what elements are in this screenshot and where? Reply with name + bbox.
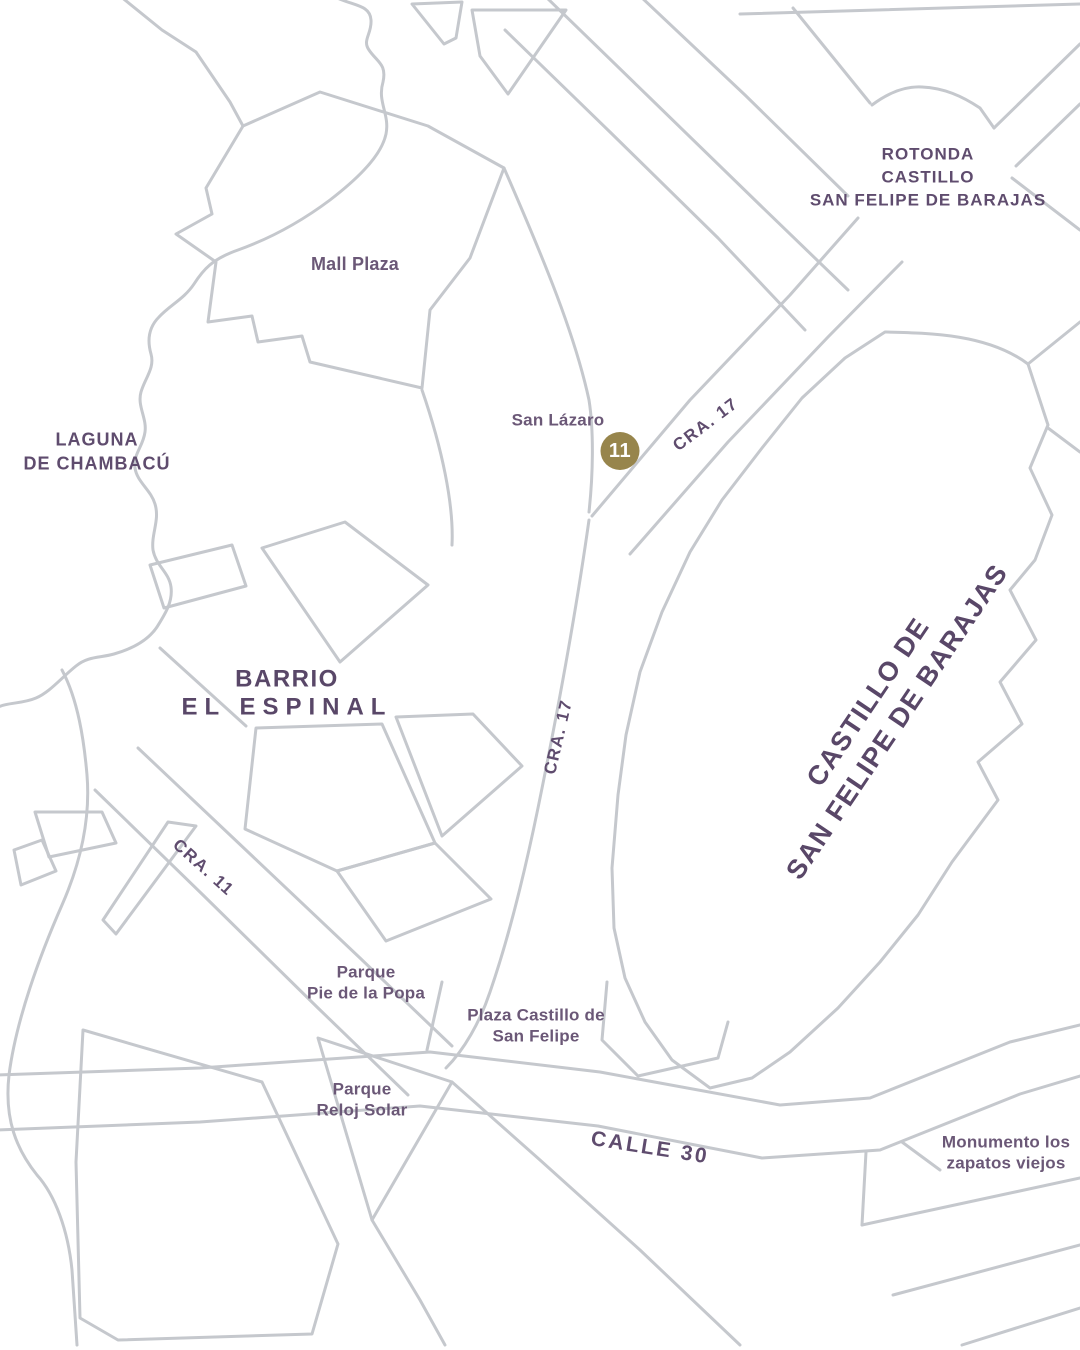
label-line: Plaza Castillo de bbox=[467, 1005, 605, 1026]
road-line bbox=[472, 10, 566, 94]
city-block bbox=[14, 840, 56, 885]
label-line: CASTILLO bbox=[810, 167, 1046, 190]
coastline-south bbox=[8, 670, 88, 1345]
label-rotonda: ROTONDA CASTILLO SAN FELIPE DE BARAJAS bbox=[810, 144, 1046, 213]
city-block bbox=[262, 522, 428, 662]
label-laguna-de-chambacu: LAGUNA DE CHAMBACÚ bbox=[24, 428, 171, 477]
label-line: ROTONDA bbox=[810, 144, 1046, 167]
road-line bbox=[372, 1220, 445, 1345]
label-line: Reloj Solar bbox=[316, 1100, 407, 1121]
label-parque-pie-de-la-popa: Parque Pie de la Popa bbox=[307, 962, 425, 1003]
label-monumento-zapatos-viejos: Monumento los zapatos viejos bbox=[942, 1132, 1070, 1173]
label-parque-reloj-solar: Parque Reloj Solar bbox=[316, 1079, 407, 1120]
road-line bbox=[120, 0, 243, 126]
road-line bbox=[505, 30, 805, 330]
city-block bbox=[150, 545, 246, 608]
label-line: EL ESPINAL bbox=[182, 693, 393, 721]
city-block bbox=[337, 843, 491, 941]
road-line bbox=[740, 4, 1080, 14]
rotonda-arc bbox=[872, 87, 994, 128]
cra17-edge bbox=[504, 168, 592, 512]
city-map: ROTONDA CASTILLO SAN FELIPE DE BARAJAS M… bbox=[0, 0, 1080, 1350]
cra17-edge bbox=[446, 520, 589, 1068]
city-block bbox=[76, 1030, 338, 1340]
label-line: Monumento los bbox=[942, 1132, 1070, 1153]
road-line bbox=[902, 1142, 940, 1170]
label-line: DE CHAMBACÚ bbox=[24, 452, 171, 476]
label-line: Parque bbox=[307, 962, 425, 983]
city-block bbox=[318, 1038, 452, 1220]
cra17-edge bbox=[592, 218, 858, 516]
road-line bbox=[862, 1152, 866, 1225]
coastline bbox=[0, 0, 387, 708]
label-mall-plaza: Mall Plaza bbox=[311, 254, 399, 276]
road-line bbox=[412, 2, 462, 44]
road-line bbox=[862, 1178, 1080, 1225]
label-san-lazaro: San Lázaro bbox=[512, 411, 605, 432]
location-marker-11[interactable]: 11 bbox=[601, 432, 640, 470]
road-line bbox=[545, 0, 848, 290]
label-line: BARRIO bbox=[182, 665, 393, 693]
road-line bbox=[1028, 322, 1080, 364]
cra11-edge bbox=[95, 790, 408, 1095]
mall-plaza-block bbox=[176, 92, 504, 388]
road-line bbox=[1048, 428, 1080, 452]
road-line bbox=[602, 982, 728, 1076]
label-line: San Felipe bbox=[467, 1026, 605, 1047]
label-line: zapatos viejos bbox=[942, 1153, 1070, 1174]
label-plaza-castillo: Plaza Castillo de San Felipe bbox=[467, 1005, 605, 1046]
calle30-edge bbox=[0, 1076, 1080, 1158]
city-block bbox=[396, 714, 522, 836]
road-line bbox=[793, 8, 870, 103]
road-line bbox=[452, 1082, 740, 1345]
label-barrio-el-espinal: BARRIO EL ESPINAL bbox=[182, 665, 393, 720]
road-line bbox=[962, 1308, 1080, 1345]
cra17-edge bbox=[630, 262, 902, 554]
road-line bbox=[893, 1245, 1080, 1295]
road-line bbox=[427, 982, 442, 1050]
label-line: Parque bbox=[316, 1079, 407, 1100]
label-line: SAN FELIPE DE BARAJAS bbox=[810, 189, 1046, 212]
label-line: Pie de la Popa bbox=[307, 983, 425, 1004]
road-line bbox=[422, 390, 452, 545]
label-line: LAGUNA bbox=[24, 428, 171, 452]
